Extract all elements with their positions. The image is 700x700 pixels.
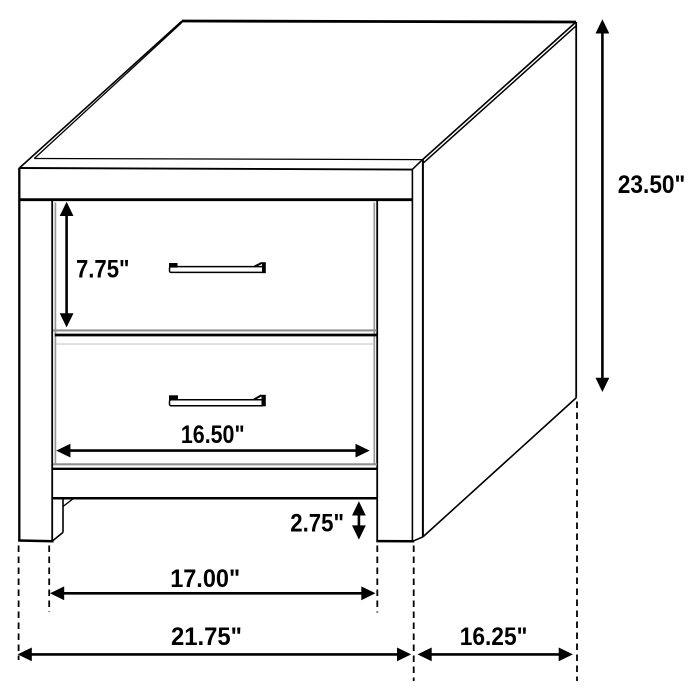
svg-text:21.75": 21.75" (171, 623, 242, 651)
svg-text:7.75": 7.75" (76, 256, 130, 284)
svg-text:2.75": 2.75" (290, 510, 344, 538)
svg-text:23.50": 23.50" (618, 171, 686, 199)
svg-text:17.00": 17.00" (170, 565, 240, 593)
svg-text:16.50": 16.50" (181, 421, 245, 449)
svg-text:16.25": 16.25" (460, 623, 528, 651)
